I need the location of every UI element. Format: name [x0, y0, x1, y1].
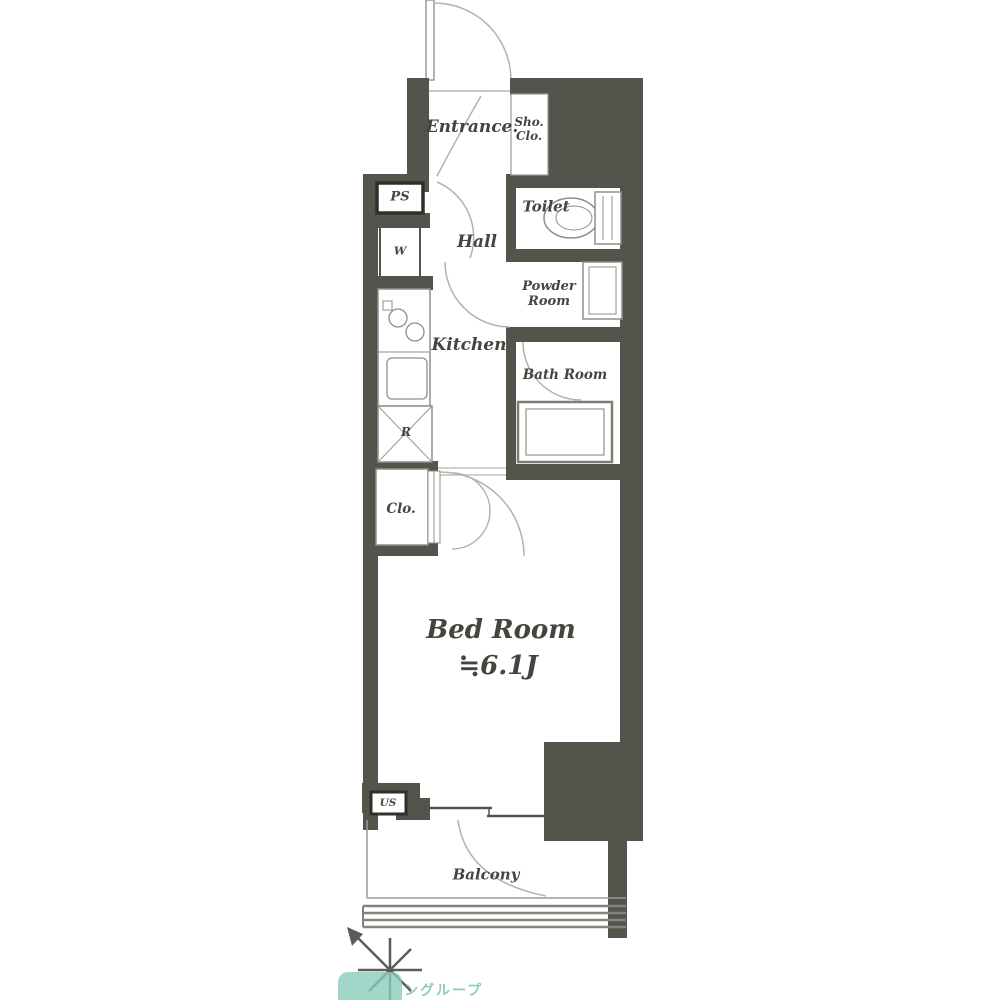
room-label-bed-room: Bed Room — [426, 616, 576, 646]
washbasin-icon — [583, 262, 622, 319]
stove-burner-icon — [389, 309, 407, 327]
powder-room-line1: Powder — [522, 280, 576, 295]
room-label-kitchen: Kitchen — [432, 336, 507, 356]
stove-burner-icon2 — [406, 323, 424, 341]
bedroom-door-arc — [440, 472, 524, 556]
room-label-toilet: Toilet — [522, 198, 569, 215]
floor-plan-drawing — [0, 0, 1000, 1000]
watermark-logo-text: ングループ — [404, 980, 483, 1000]
kitchen-counter-icon — [378, 289, 430, 406]
room-label-entrance: Entrance. — [426, 118, 519, 138]
sliding-window-icon — [428, 808, 550, 816]
room-label-powder-room: Powder Room — [522, 280, 576, 310]
bathtub-icon — [518, 402, 612, 462]
room-label-hall: Hall — [457, 233, 497, 253]
powder-door-arc — [445, 262, 510, 327]
room-label-utility-space: US — [380, 797, 397, 809]
entrance-door-icon — [426, 0, 511, 80]
room-label-refrigerator: R — [401, 426, 411, 440]
room-label-shoe-closet: Sho. Clo. — [514, 116, 543, 144]
faucet-icon — [383, 301, 392, 310]
room-label-bath-room: Bath Room — [523, 368, 607, 384]
room-label-closet: Clo. — [386, 502, 415, 518]
floor-plan-page: Entrance. Sho. Clo. PS W Hall Toilet Pow… — [0, 0, 1000, 1000]
room-label-washer: W — [394, 246, 406, 259]
room-label-balcony: Balcony — [453, 866, 520, 883]
balcony-door-curve — [458, 820, 546, 896]
shoe-closet-line1: Sho. — [514, 116, 543, 130]
shoe-closet-line2: Clo. — [514, 130, 543, 144]
watermark-logo — [338, 972, 402, 1000]
sink-icon — [387, 358, 427, 399]
room-label-pipe-space: PS — [390, 191, 409, 206]
powder-room-line2: Room — [522, 295, 576, 310]
room-label-bed-room-size: ≒6.1J — [458, 652, 537, 682]
